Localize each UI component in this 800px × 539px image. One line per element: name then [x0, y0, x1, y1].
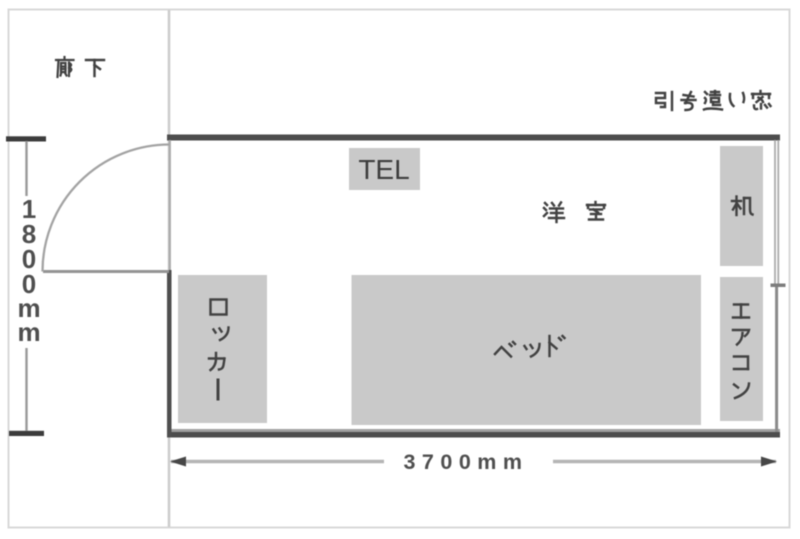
svg-text:3700mm: 3700mm: [403, 450, 528, 474]
svg-text:TEL: TEL: [358, 154, 409, 185]
svg-text:m: m: [17, 317, 40, 347]
